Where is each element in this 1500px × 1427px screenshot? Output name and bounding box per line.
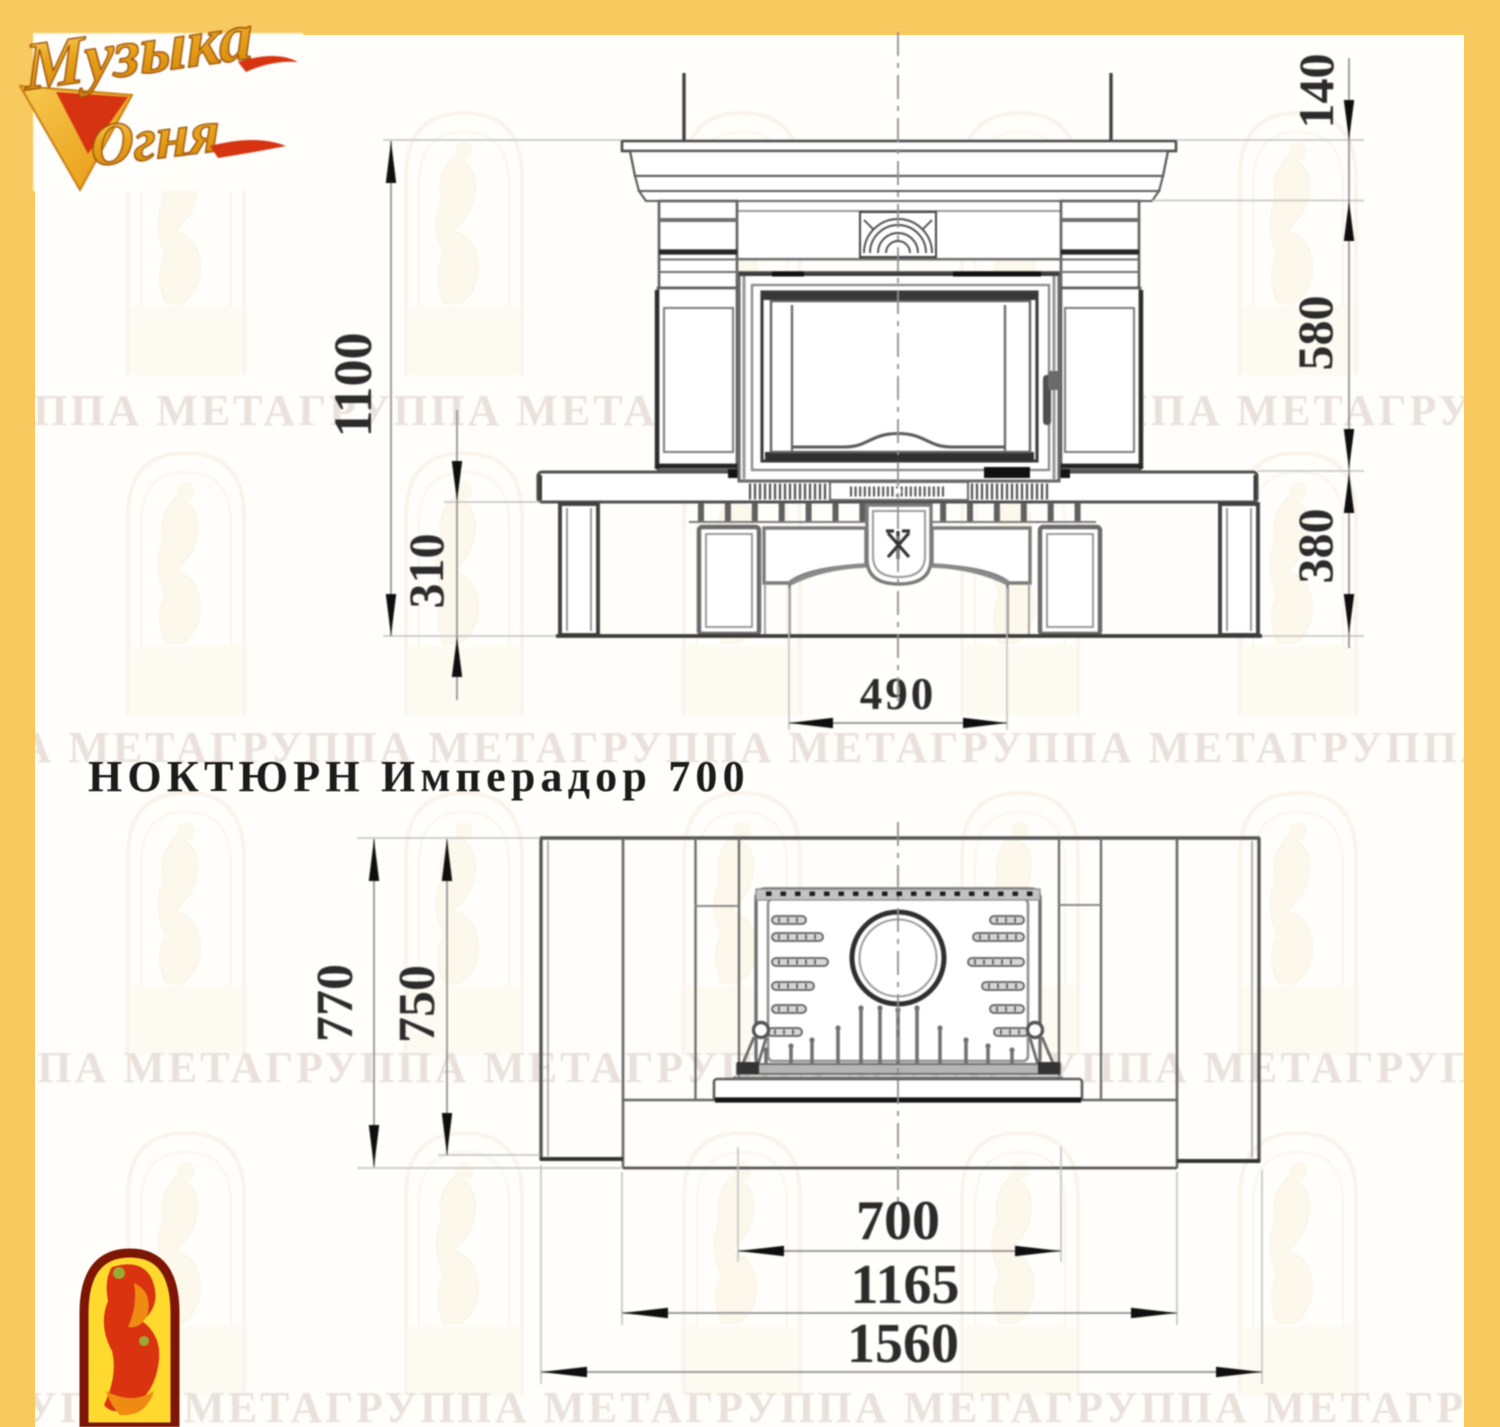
svg-text:1560: 1560 <box>847 1313 959 1375</box>
svg-text:380: 380 <box>1287 509 1343 584</box>
svg-text:140: 140 <box>1288 54 1344 129</box>
svg-text:580: 580 <box>1287 296 1343 371</box>
svg-text:750: 750 <box>389 965 446 1043</box>
svg-text:770: 770 <box>307 964 364 1042</box>
svg-text:1165: 1165 <box>851 1254 960 1316</box>
svg-text:310: 310 <box>398 534 454 609</box>
svg-text:1100: 1100 <box>323 332 383 437</box>
